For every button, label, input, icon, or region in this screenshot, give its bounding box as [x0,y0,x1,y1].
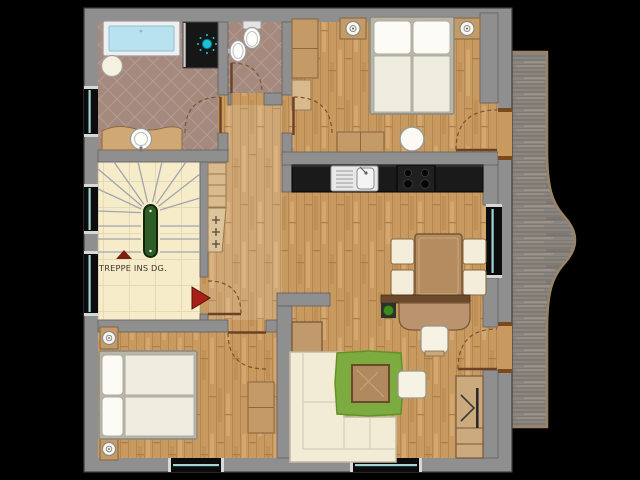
shower-head-icon [202,39,211,48]
tv-screen-icon [476,388,479,428]
mattress [125,355,194,395]
pilaster [480,13,498,103]
hallway [208,163,226,252]
wall-wc-south-right [264,93,282,105]
wall-wc-south-left [228,93,231,105]
handrail-end [149,250,151,252]
wall-bedroom-north-west-upper [282,22,292,95]
pillow [413,21,450,54]
hallway-floor-upper [228,105,282,162]
lamp-dot [466,28,468,30]
handrail [144,205,157,257]
mattress [374,56,411,112]
wall-bathroom-east-upper [218,22,228,95]
handrail-end [149,210,151,212]
plant-icon [383,305,393,315]
pillow [374,21,411,54]
stairs-label: TREPPE INS DG. [98,263,167,273]
shower-door [184,23,186,67]
faucet-icon [140,147,143,152]
bathtub-drain-icon [140,30,143,33]
floorplan-canvas: TREPPE INS DG. [0,0,640,480]
bathroom-window [84,86,98,137]
dining-chair [391,270,414,295]
living-balcony-door-opening [498,326,512,369]
mattress [413,56,450,112]
desk-chair [421,326,448,353]
door-jamb [498,156,512,160]
dining-window [486,204,502,278]
pilaster [483,370,498,458]
wall-staircase-east-upper [200,162,208,277]
kitchen-sink-icon [331,166,378,191]
lamp-dot [108,448,110,450]
dining-chair [463,239,486,264]
stool [102,56,123,77]
desk-chair-base [425,351,444,356]
bedroom-south-window [168,458,224,472]
wall-bathroom-south [98,150,228,162]
door-jamb [498,369,512,373]
shower [183,22,218,68]
staircase-window-upper [84,184,98,234]
mattress [125,397,194,436]
wall-bathroom-east-lower [218,133,228,152]
door-jamb [498,108,512,112]
shelf [292,80,311,110]
dining-chair [391,239,414,264]
dining-chair [463,270,486,295]
side-table [292,322,322,352]
door-jamb [498,322,512,326]
tv-cabinet [456,376,483,458]
counter-edge [292,165,483,167]
bedroom-balcony-door-opening [498,112,512,156]
washbasin-icon [131,129,152,150]
pillow [102,397,123,436]
staircase-window-lower [84,251,98,316]
lamp-dot [352,28,354,30]
lamp-dot [108,337,110,339]
wall-living-north-stub [277,293,330,306]
sideboard [381,295,470,303]
dining-table [415,234,462,298]
kitchen-counter [292,165,483,192]
wall-bedroom-north-south [282,152,498,165]
round-table [400,127,424,151]
cooktop-icon [397,165,435,192]
floorplan-svg: TREPPE INS DG. [0,0,640,480]
footstool [398,371,426,398]
pillow [102,355,123,395]
